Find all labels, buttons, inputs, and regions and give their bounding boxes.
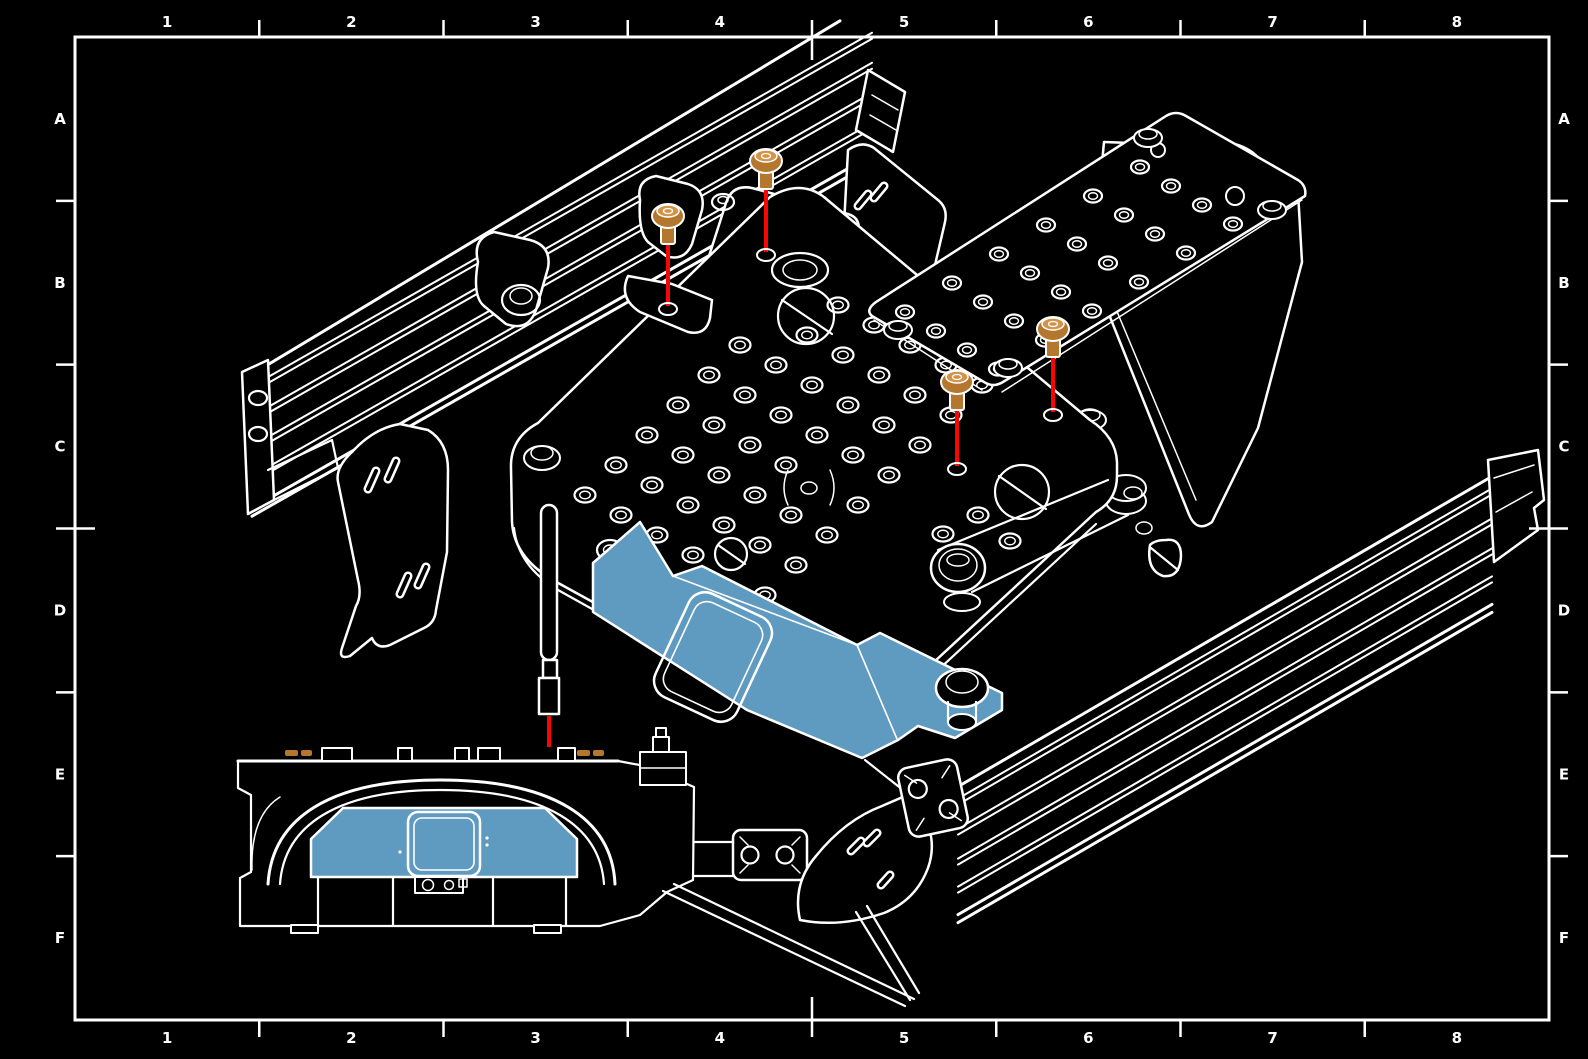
grid-column-label-bottom: 1 <box>162 1029 172 1047</box>
grid-row-label-left: F <box>55 929 65 947</box>
grid-column-label-top: 2 <box>346 13 356 31</box>
installed-screw-mark <box>593 750 604 756</box>
installed-screw-mark <box>285 750 298 756</box>
grid-column-label-top: 3 <box>530 13 540 31</box>
installed-screw-mark <box>301 750 312 756</box>
foot-left <box>291 925 318 933</box>
screw-head-top <box>755 150 777 162</box>
grid-column-label-top: 8 <box>1452 13 1462 31</box>
grid-column-label-bottom: 8 <box>1452 1029 1462 1047</box>
grid-row-label-left: E <box>55 765 65 783</box>
grid-column-label-top: 5 <box>899 13 909 31</box>
grid-column-label-bottom: 4 <box>715 1029 725 1047</box>
grid-row-label-right: D <box>1558 601 1570 619</box>
installed-screw-mark <box>577 750 590 756</box>
exploded-assembly-drawing: 1122334455667788AABBCCDDEEFF <box>0 0 1588 1059</box>
antenna <box>539 505 559 714</box>
screw-head-top <box>657 205 679 217</box>
left-wing-bracket <box>338 424 448 657</box>
screw-head-top <box>1042 318 1064 330</box>
rear-rail-front-face <box>896 758 969 839</box>
grid-row-label-right: B <box>1558 274 1569 292</box>
grid-column-label-top: 4 <box>715 13 725 31</box>
grid-column-label-bottom: 2 <box>346 1029 356 1047</box>
grid-row-label-left: B <box>54 274 65 292</box>
grid-column-label-top: 1 <box>162 13 172 31</box>
grid-column-label-top: 7 <box>1267 13 1277 31</box>
front-panel-highlighted <box>311 808 577 877</box>
grid-column-label-bottom: 7 <box>1267 1029 1277 1047</box>
grid-row-label-left: C <box>54 438 65 456</box>
grid-column-label-top: 6 <box>1083 13 1093 31</box>
grid-row-label-right: E <box>1559 765 1569 783</box>
grid-column-label-bottom: 3 <box>530 1029 540 1047</box>
grid-row-label-left: A <box>54 110 66 128</box>
grid-row-label-right: F <box>1559 929 1569 947</box>
foot-right <box>534 925 561 933</box>
grid-row-label-right: C <box>1558 438 1569 456</box>
grid-row-label-left: D <box>54 601 66 619</box>
grid-row-label-right: A <box>1558 110 1570 128</box>
grid-column-label-bottom: 5 <box>899 1029 909 1047</box>
screw-head-top <box>946 371 968 383</box>
grid-column-label-bottom: 6 <box>1083 1029 1093 1047</box>
